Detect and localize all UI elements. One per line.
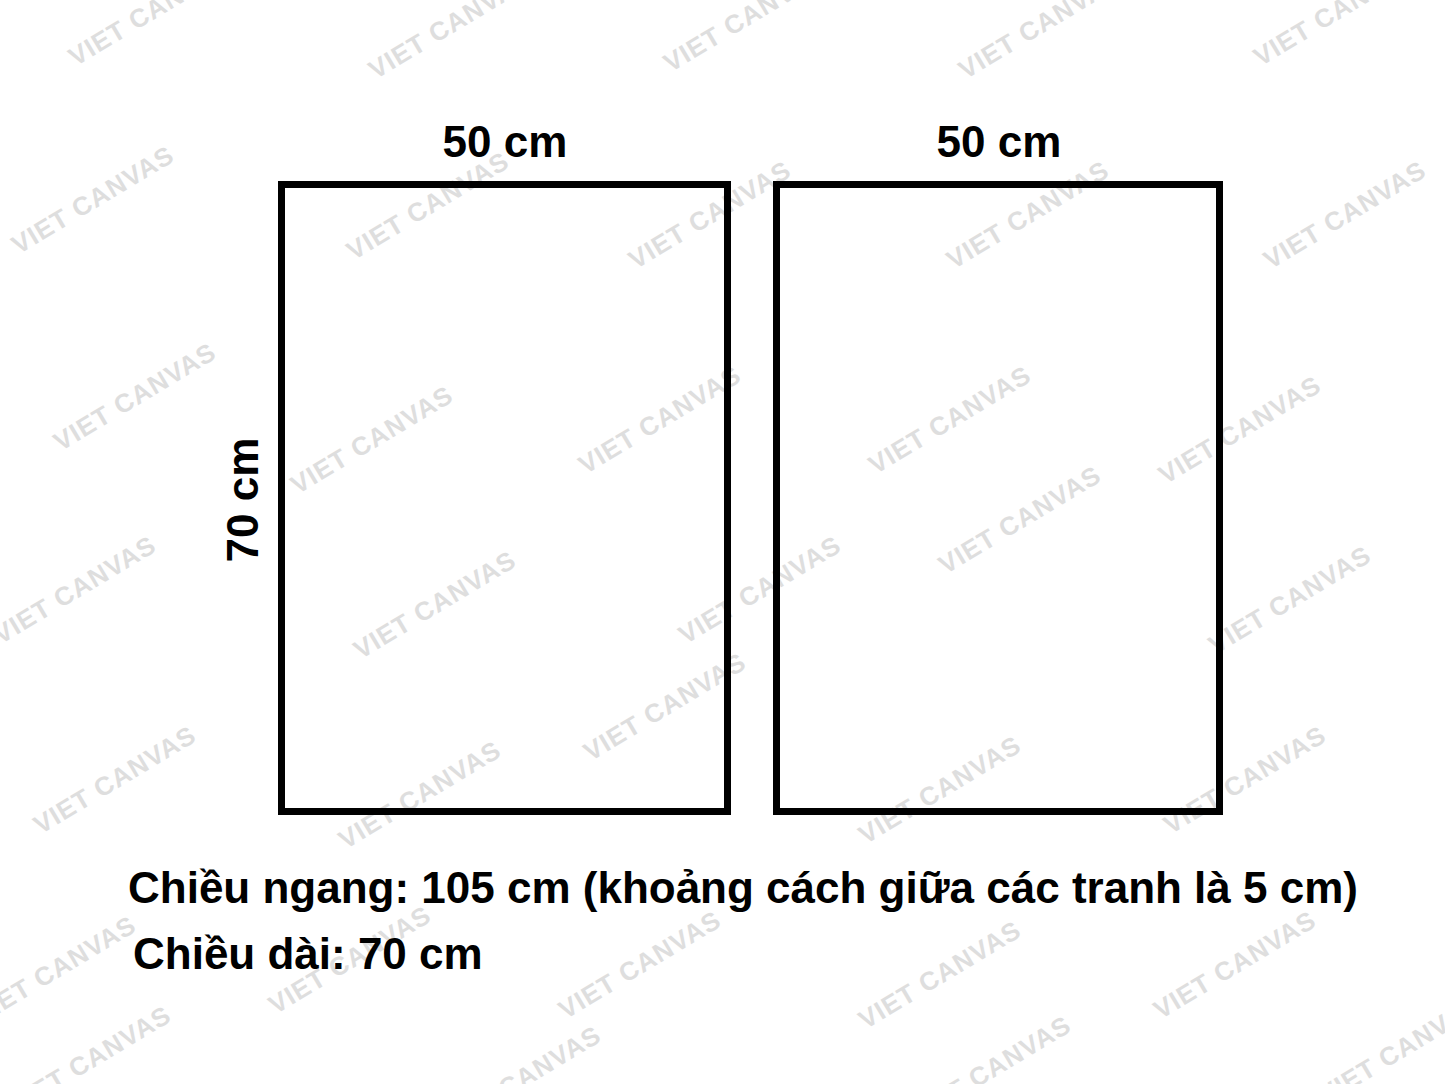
watermark-text: VIET CANVAS [1203, 539, 1377, 660]
watermark-text: VIET CANVAS [953, 0, 1127, 86]
right-panel-width-label: 50 cm [937, 120, 1062, 164]
watermark-text: VIET CANVAS [48, 336, 222, 457]
watermark-text: VIET CANVAS [28, 719, 202, 840]
watermark-text: VIET CANVAS [1148, 904, 1322, 1025]
dimension-diagram: VIET CANVASVIET CANVASVIET CANVASVIET CA… [0, 0, 1445, 1084]
caption-total-width: Chiều ngang: 105 cm (khoảng cách giữa cá… [128, 866, 1358, 910]
watermark-text: VIET CANVAS [1248, 0, 1422, 73]
caption-total-height: Chiều dài: 70 cm [133, 932, 483, 976]
right-panel-outline [773, 181, 1223, 815]
watermark-text: VIET CANVAS [363, 0, 537, 86]
watermark-text: VIET CANVAS [1313, 989, 1445, 1084]
watermark-text: VIET CANVAS [6, 139, 180, 260]
watermark-text: VIET CANVAS [63, 0, 237, 73]
left-panel-outline [278, 181, 731, 815]
watermark-text: VIET CANVAS [0, 909, 142, 1030]
watermark-text: VIET CANVAS [553, 904, 727, 1025]
watermark-text: VIET CANVAS [1258, 154, 1432, 275]
watermark-text: VIET CANVAS [853, 914, 1027, 1035]
watermark-text: VIET CANVAS [903, 1009, 1077, 1084]
panel-height-label: 70 cm [221, 438, 265, 563]
watermark-text: VIET CANVAS [3, 999, 177, 1084]
left-panel-width-label: 50 cm [443, 120, 568, 164]
watermark-text: VIET CANVAS [0, 529, 162, 650]
watermark-text: VIET CANVAS [658, 0, 832, 79]
watermark-text: VIET CANVAS [433, 1019, 607, 1084]
